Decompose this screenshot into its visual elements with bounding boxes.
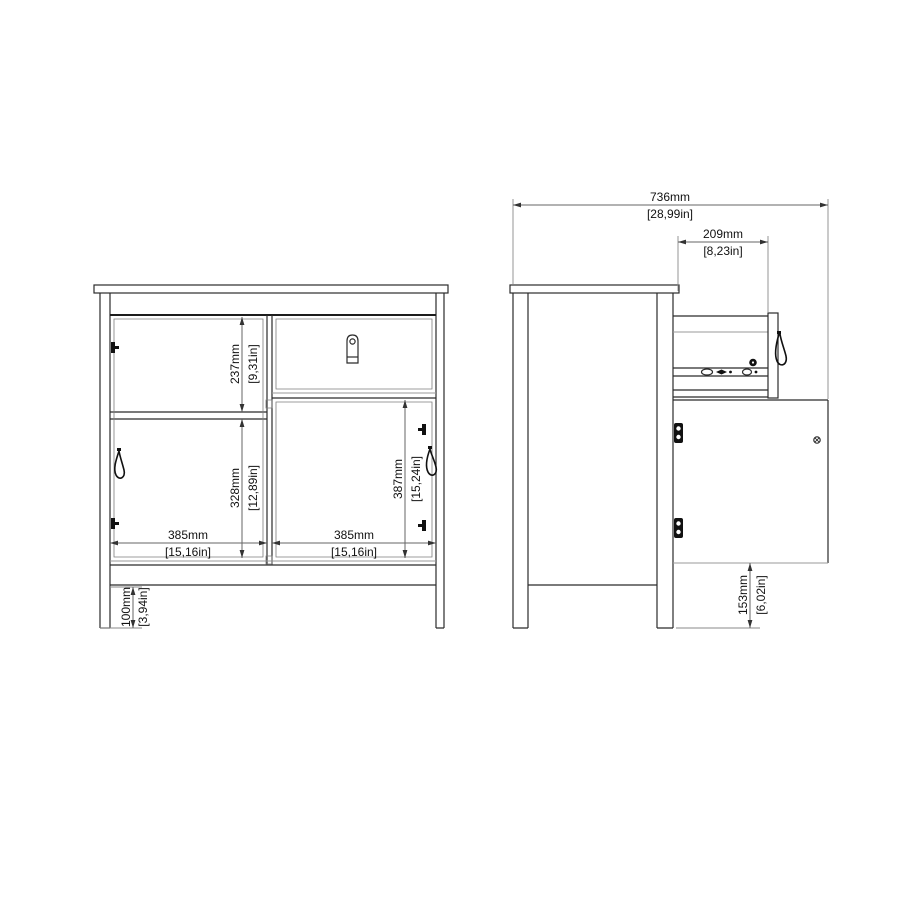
front-view: 237mm [9,31in] 328mm [12,89in] 387mm [15… [94, 285, 448, 628]
hinge-icon [674, 423, 683, 443]
dim-side-drawer-extension: 209mm [8,23in] [678, 227, 768, 312]
slide-roller-icon [749, 359, 757, 367]
dim-label-in: [9,31in] [246, 344, 260, 383]
front-frame-lines [110, 315, 436, 585]
side-top-panel [510, 285, 679, 293]
dim-label-in: [15,16in] [165, 545, 211, 559]
dim-label-mm: 237mm [228, 344, 242, 384]
dim-front-right-width: 385mm [15,16in] [272, 528, 436, 559]
strap-handle-icon [115, 448, 125, 478]
drawer-slide-rail-icon [702, 369, 758, 375]
dim-label-in: [6,02in] [754, 575, 768, 614]
strap-handle-icon [427, 446, 437, 475]
cabinet-technical-drawing: 237mm [9,31in] 328mm [12,89in] 387mm [15… [0, 0, 900, 900]
dim-front-left-width: 385mm [15,16in] [110, 528, 267, 559]
front-door-drawer-insets [114, 319, 432, 557]
front-secondary-edges [110, 393, 436, 561]
dim-front-lower-left: 328mm [12,89in] [228, 419, 260, 558]
front-top-panel [94, 285, 448, 293]
side-view: 736mm [28,99in] 209mm [8,23in] 153mm [6,… [510, 190, 828, 628]
dim-label-mm: 153mm [736, 575, 750, 615]
dim-label-in: [15,16in] [331, 545, 377, 559]
front-shelf-divider [110, 412, 267, 419]
dim-front-right-door: 387mm [15,24in] [391, 400, 423, 558]
hinge-icon [111, 518, 119, 529]
drawer-handle-icon [347, 335, 358, 363]
dim-label-in: [28,99in] [647, 207, 693, 221]
dim-label-mm: 209mm [703, 227, 743, 241]
dim-side-total-depth: 736mm [28,99in] [513, 190, 828, 399]
open-door [673, 400, 828, 563]
dim-label-in: [15,24in] [409, 456, 423, 502]
dim-label-mm: 385mm [168, 528, 208, 542]
dim-label-mm: 328mm [228, 468, 242, 508]
screw-icon [814, 437, 820, 443]
dim-label-mm: 736mm [650, 190, 690, 204]
drawer-body-lines [673, 316, 768, 397]
side-stiles [513, 293, 673, 628]
dim-label-mm: 100mm [119, 587, 133, 627]
hinge-icon [674, 518, 683, 538]
dim-label-in: [8,23in] [703, 244, 742, 258]
dim-side-door-clearance: 153mm [6,02in] [676, 563, 768, 628]
hinge-icon [418, 424, 426, 435]
dim-label-in: [12,89in] [246, 465, 260, 511]
dim-label-in: [3,94in] [136, 587, 150, 626]
dim-front-upper-left: 237mm [9,31in] [228, 317, 260, 412]
dim-label-mm: 387mm [391, 459, 405, 499]
hinge-icon [418, 520, 426, 531]
technical-drawing-page: 237mm [9,31in] 328mm [12,89in] 387mm [15… [0, 0, 900, 900]
dim-front-leg-height: 100mm [3,94in] [100, 587, 150, 628]
door-outline [673, 400, 828, 563]
dim-label-mm: 385mm [334, 528, 374, 542]
open-drawer [673, 313, 786, 398]
hinge-icon [111, 342, 119, 353]
